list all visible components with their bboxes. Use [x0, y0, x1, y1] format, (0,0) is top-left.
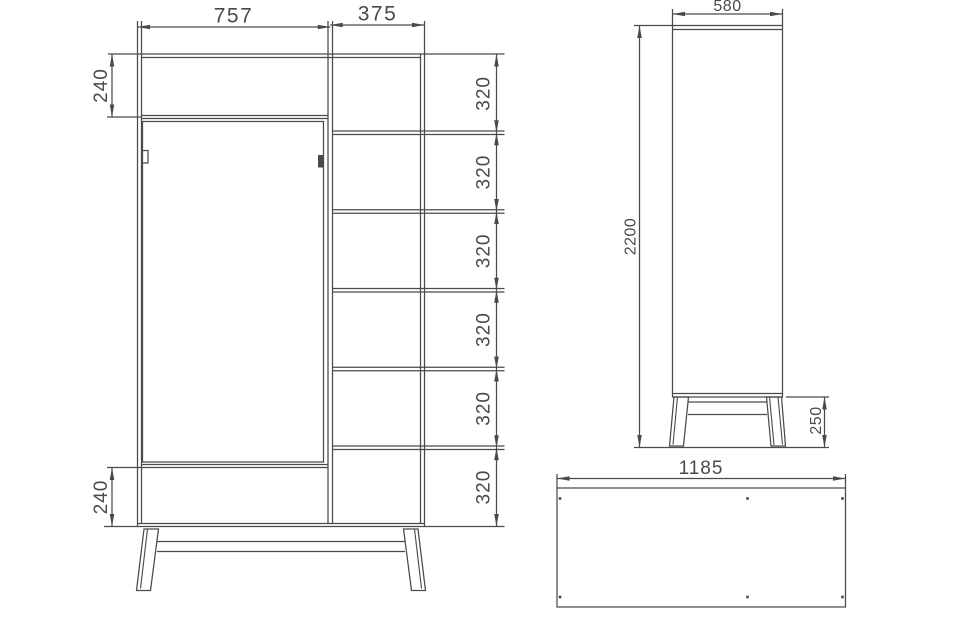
side-dimensions: 580 2200 250	[623, 0, 830, 448]
front-cabinet-outline	[138, 21, 425, 527]
door-handle-mark	[318, 155, 324, 168]
front-view: 757 375 240 240 320 320 320	[91, 3, 505, 591]
wardrobe-technical-drawing: 757 375 240 240 320 320 320	[0, 0, 960, 620]
side-back-leg	[767, 397, 786, 446]
dim-label-757: 757	[214, 5, 254, 28]
dim-label-375: 375	[358, 3, 398, 26]
dim-label-320-3: 320	[474, 234, 495, 269]
dim-label-320-2: 320	[474, 155, 495, 190]
front-dimensions: 757 375 240 240 320 320 320	[91, 3, 505, 527]
top-view: 1185	[557, 458, 846, 607]
side-body-outline	[673, 9, 783, 397]
dim-label-250: 250	[808, 406, 825, 434]
dim-label-320-4: 320	[474, 312, 495, 347]
top-outline	[557, 474, 846, 607]
dim-label-2200: 2200	[623, 218, 640, 256]
dim-label-1185: 1185	[679, 458, 724, 479]
dim-label-240-bottom: 240	[91, 480, 112, 515]
dim-label-240-top: 240	[91, 68, 112, 103]
dim-label-320-6: 320	[474, 470, 495, 505]
side-front-leg	[670, 397, 689, 446]
front-right-leg	[404, 529, 426, 591]
front-door-panel	[143, 122, 324, 463]
technical-drawing-page: 757 375 240 240 320 320 320	[0, 0, 960, 620]
top-dimensions: 1185	[557, 458, 846, 479]
front-left-section	[142, 116, 329, 468]
front-legs	[137, 529, 426, 591]
top-fastener-dots	[559, 497, 844, 598]
door-hinge-mark	[143, 151, 149, 164]
dim-label-580: 580	[713, 0, 741, 15]
side-view: 580 2200 250	[623, 0, 830, 448]
dim-label-320-5: 320	[474, 391, 495, 426]
side-legs	[670, 397, 786, 446]
dim-label-320-1: 320	[474, 76, 495, 111]
front-left-leg	[137, 529, 159, 591]
